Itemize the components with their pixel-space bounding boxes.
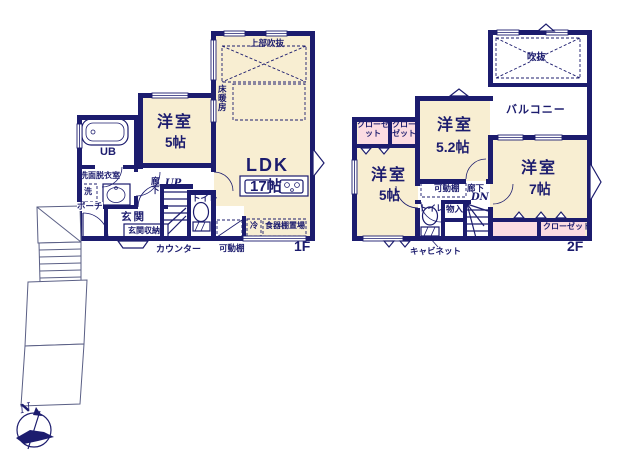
label-washroom: 洗面脱衣室 <box>80 172 120 181</box>
label-floor-2f: 2F <box>567 239 583 254</box>
label-entrance: 玄関 <box>121 212 146 223</box>
label-bedroom-7-size: 7帖 <box>529 182 551 197</box>
label-porch: ポーチ <box>77 202 103 211</box>
floorplan-page: 上部吹抜 床暖房 LDK 17帖 洋室 5帖 UB 洗面脱衣室 洗 ポーチ 玄関… <box>0 0 620 464</box>
label-hallway-1f: 廊下 <box>151 177 161 195</box>
label-closet-a: クローゼット <box>357 121 389 138</box>
site-approach-steps <box>21 206 87 406</box>
label-bedroom-5: 洋室 <box>371 167 407 184</box>
label-floor-1f: 1F <box>294 239 310 254</box>
label-closet-b: クローゼット <box>391 121 417 138</box>
label-cabinet: キャビネット <box>410 247 461 256</box>
label-storage: 物入 <box>446 205 463 214</box>
label-bedroom-1f: 洋室 <box>157 114 193 131</box>
label-washer: 洗 <box>84 188 92 197</box>
label-bedroom-52: 洋室 <box>437 117 473 134</box>
label-shelf-2f: 可動棚 <box>434 184 460 193</box>
label-balcony: バルコニー <box>506 105 566 117</box>
label-floor-heating: 床暖房 <box>218 85 228 113</box>
label-ldk-size: 17帖 <box>250 179 282 195</box>
label-upper-void-1f: 上部吹抜 <box>250 39 284 48</box>
label-toilet-1f: トイレ <box>192 194 218 203</box>
label-fridge: 冷 <box>250 222 258 231</box>
floorplan-linework <box>0 0 620 464</box>
label-stairs-down: DN <box>471 193 489 204</box>
label-bedroom-5-size: 5帖 <box>379 189 400 204</box>
label-cupboard-space: 食器棚置場 <box>265 222 305 231</box>
label-bedroom-1f-size: 5帖 <box>165 136 186 151</box>
label-bedroom-7: 洋室 <box>521 160 557 177</box>
label-ldk: LDK <box>246 156 289 175</box>
label-counter: カウンター <box>156 245 201 255</box>
label-unit-bath: UB <box>100 147 116 159</box>
label-bedroom-52-size: 5.2帖 <box>436 140 469 155</box>
label-closet-c: クローゼット <box>543 223 591 232</box>
label-entrance-storage: 玄関収納 <box>128 227 160 236</box>
label-toilet-2f: トイレ <box>419 204 445 213</box>
label-void-2f: 吹抜 <box>527 53 546 63</box>
label-shelf-1f: 可動棚 <box>219 244 245 253</box>
label-stairs-up: UP <box>165 179 181 190</box>
